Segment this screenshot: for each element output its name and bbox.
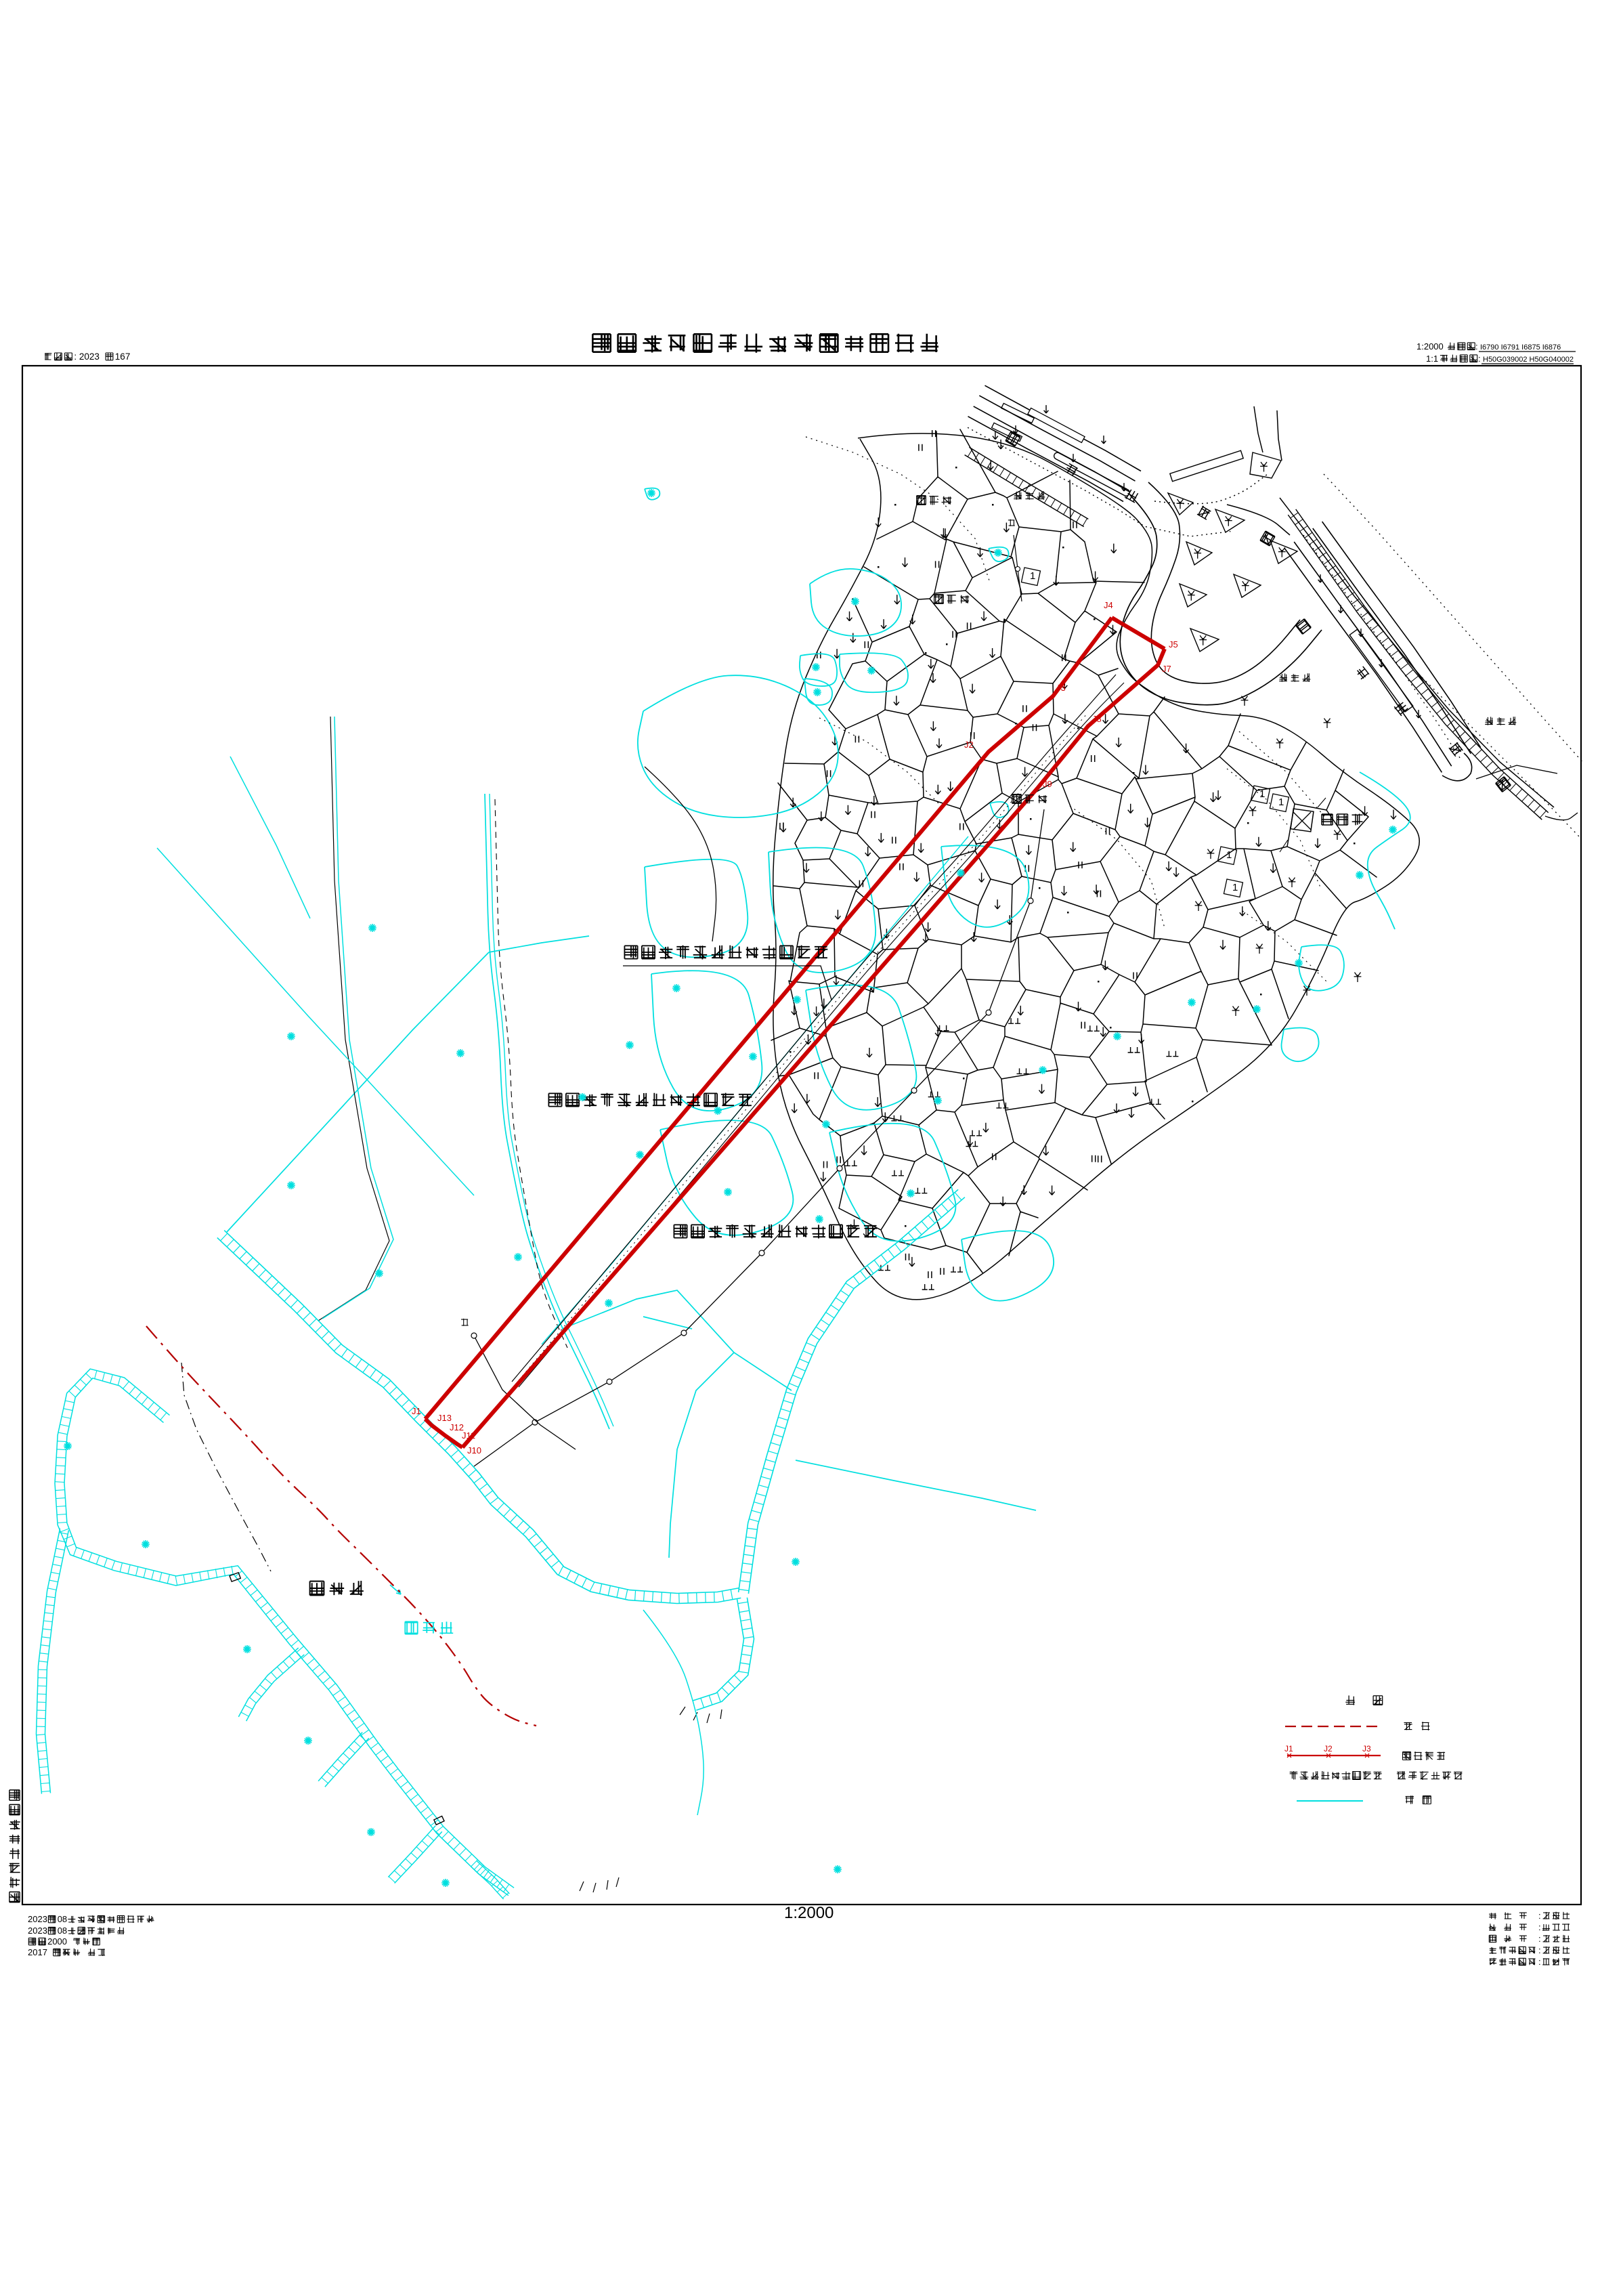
svg-text:2000: 2000 xyxy=(47,1936,67,1947)
svg-text:08: 08 xyxy=(58,1926,67,1936)
svg-text:1: 1 xyxy=(1259,788,1265,800)
svg-text:H50G039002 H50G040002: H50G039002 H50G040002 xyxy=(1483,356,1574,364)
svg-text:1: 1 xyxy=(1232,882,1238,893)
svg-text:J8: J8 xyxy=(1092,714,1102,724)
svg-text:2023: 2023 xyxy=(28,1926,47,1936)
svg-text:167: 167 xyxy=(115,352,131,362)
svg-text::: : xyxy=(1475,341,1478,352)
svg-text:I6790 I6791 I6875 I6876: I6790 I6791 I6875 I6876 xyxy=(1480,343,1561,352)
svg-text:J3: J3 xyxy=(1362,1744,1371,1753)
svg-text:J9: J9 xyxy=(1043,779,1052,789)
svg-text::: : xyxy=(1538,1957,1541,1967)
svg-text:J10: J10 xyxy=(467,1445,481,1455)
svg-text:J5: J5 xyxy=(1169,639,1178,650)
svg-text:08: 08 xyxy=(58,1914,67,1924)
svg-text:J2: J2 xyxy=(964,740,974,750)
svg-text:1: 1 xyxy=(1226,849,1232,861)
svg-text:J7: J7 xyxy=(1162,664,1171,674)
svg-text::: : xyxy=(1478,354,1481,364)
svg-text:1:2000: 1:2000 xyxy=(1417,341,1444,352)
svg-text::: : xyxy=(1538,1922,1541,1932)
svg-text:: 2023: : 2023 xyxy=(74,352,100,362)
svg-text:J1: J1 xyxy=(412,1406,421,1416)
svg-text:1: 1 xyxy=(1030,570,1035,582)
svg-text:2017: 2017 xyxy=(28,1947,47,1957)
svg-text:1:2000: 1:2000 xyxy=(784,1904,834,1922)
svg-text:2023: 2023 xyxy=(28,1914,47,1924)
svg-text:J13: J13 xyxy=(437,1413,452,1423)
svg-text:1:1: 1:1 xyxy=(1426,354,1438,364)
svg-text:J1: J1 xyxy=(1284,1744,1293,1753)
svg-text::: : xyxy=(1538,1945,1541,1955)
svg-text:J2: J2 xyxy=(1324,1744,1333,1753)
svg-text:J11: J11 xyxy=(462,1430,475,1441)
svg-text:J3: J3 xyxy=(1056,683,1066,693)
svg-text:J4: J4 xyxy=(1104,600,1113,610)
svg-text::: : xyxy=(1538,1934,1541,1944)
svg-text:J12: J12 xyxy=(450,1422,464,1432)
svg-text:1: 1 xyxy=(1278,796,1284,808)
svg-text::: : xyxy=(1538,1911,1541,1921)
